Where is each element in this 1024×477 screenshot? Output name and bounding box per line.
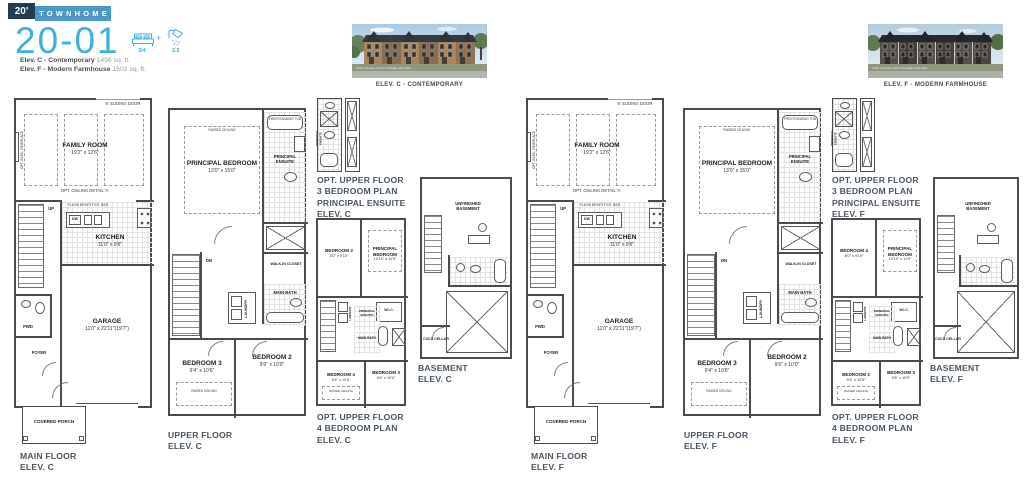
principal-ensuite-label: PRINCIPAL ENSUITE bbox=[316, 125, 323, 151]
principal-ensuite-label: PRINCIPAL ENSUITE bbox=[870, 310, 894, 317]
door-swing bbox=[208, 341, 223, 356]
freestanding-tub-label: FREESTANDING TUB bbox=[784, 118, 816, 122]
opt3-closet-strip-c bbox=[345, 98, 360, 172]
door-swing bbox=[42, 362, 56, 376]
wic-label: W.I.C. bbox=[895, 308, 913, 312]
family-room-dims: 19'2" x 12'6" bbox=[30, 150, 140, 156]
opt4-bedroom3-label: BEDROOM 3 9'6" x 10'0" bbox=[366, 370, 406, 380]
bedroom2-label: BEDROOM 2 9'6" x 10'0" bbox=[753, 354, 821, 368]
powder-label: PWD bbox=[531, 324, 549, 329]
opt4-bedroom3-dims: 9'6" x 10'0" bbox=[881, 376, 921, 381]
door-swing bbox=[723, 341, 738, 356]
bedroom2-dims: 9'6" x 10'0" bbox=[753, 362, 821, 368]
principal-ensuite-label: PRINCIPAL ENSUITE bbox=[781, 154, 819, 164]
dw-label: DW bbox=[581, 217, 593, 221]
closet bbox=[347, 101, 357, 131]
stairs-down-label: DN bbox=[718, 258, 730, 263]
tub bbox=[320, 153, 338, 167]
walk-in-closet-label: WALK-IN CLOSET bbox=[268, 262, 304, 266]
vanity-sink bbox=[325, 102, 335, 109]
elev-f-name: Elev. F - Modern Farmhouse bbox=[20, 66, 111, 73]
opt4-bedroom2-lower-dims: 9'4" x 10'6" bbox=[835, 378, 877, 383]
principal-bedroom-dims: 13'0" x 15'0" bbox=[174, 168, 270, 174]
bath-tub bbox=[781, 312, 819, 323]
porch-post bbox=[591, 436, 596, 441]
powder-sink bbox=[533, 300, 543, 308]
rough-in-tub bbox=[1001, 259, 1013, 283]
toilet bbox=[839, 131, 850, 139]
stairs-up bbox=[18, 204, 44, 288]
opt4-bedroom2-dims: 8'0" x 9'10" bbox=[319, 254, 359, 259]
covered-porch-f: COVERED PORCH bbox=[534, 406, 598, 444]
caption-main-floor-f: MAIN FLOOR ELEV. F bbox=[531, 451, 587, 474]
brochure-page: 20' TOWNHOME 20-01 3/4 + 2.5 Elev. C - C… bbox=[0, 0, 1024, 477]
laundry-label: LAUNDRY bbox=[864, 303, 868, 325]
wall bbox=[234, 340, 236, 418]
principal-ensuite-label: PRINCIPAL ENSUITE bbox=[831, 125, 838, 151]
opt3-closet-strip-f bbox=[860, 98, 875, 172]
main-bath-label: MAIN BATH bbox=[781, 290, 819, 295]
stairs-down-label: DN bbox=[203, 258, 215, 263]
sliding-door-label: 6' SLIDING DOOR bbox=[612, 101, 658, 106]
principal-bedroom-label: PRINCIPAL BEDROOM 13'0" x 15'0" bbox=[689, 160, 785, 174]
opt4-principal-label: PRINCIPAL BEDROOM 10'10" x 11'9" bbox=[879, 246, 921, 262]
ensuite-toilet bbox=[284, 172, 297, 182]
opt4-plan-c: BEDROOM 2 8'0" x 9'10" PRINCIPAL BEDROOM… bbox=[316, 218, 406, 406]
principal-ensuite-label: PRINCIPAL ENSUITE bbox=[355, 310, 379, 317]
powder-toilet bbox=[547, 302, 557, 314]
elevation-f-caption: ELEV. F - MODERN FARMHOUSE bbox=[868, 82, 1003, 88]
opt4-principal-dims: 10'10" x 11'9" bbox=[879, 257, 921, 262]
elev-c-spec: Elev. C - Contemporary 1496 sq. ft. bbox=[20, 57, 130, 64]
rough-in-sink bbox=[966, 263, 975, 272]
vanity-sink bbox=[840, 102, 850, 109]
laundry-label: LAUNDRY bbox=[349, 303, 353, 325]
caption-opt3-f: OPT. UPPER FLOOR 3 BEDROOM PLAN PRINCIPA… bbox=[832, 175, 921, 220]
opt4-bedroom4-name: BEDROOM 4 bbox=[327, 372, 355, 377]
wall bbox=[364, 362, 366, 408]
wall bbox=[318, 360, 408, 362]
raised-ceiling-label: RAISED CEILING bbox=[715, 128, 759, 132]
shower-icon bbox=[166, 28, 186, 47]
caption-upper-floor-f: UPPER FLOOR ELEV. F bbox=[684, 430, 748, 453]
opt4-bedroom2-name: BEDROOM 2 bbox=[325, 248, 353, 253]
closet bbox=[862, 137, 872, 167]
basement-plan-f: UNFINISHED BASEMENT COLD CELLAR bbox=[933, 177, 1019, 359]
rough-in-toilet bbox=[979, 265, 990, 273]
caption-basement-c: BASEMENT ELEV. C bbox=[418, 363, 468, 386]
door-swing bbox=[554, 362, 568, 376]
opt4-principal-label: PRINCIPAL BEDROOM 10'10" x 11'9" bbox=[364, 246, 406, 262]
closet bbox=[347, 137, 357, 167]
raised-ceiling-label: RAISED CEILING bbox=[184, 390, 224, 394]
bathroom-count: 2.5 bbox=[172, 48, 180, 54]
unfinished-basement-label: UNFINISHED BASEMENT bbox=[956, 201, 1000, 211]
opt4-bedroom2-lower-name: BEDROOM 2 bbox=[842, 372, 870, 377]
stairs bbox=[937, 215, 955, 273]
dryer bbox=[746, 309, 757, 320]
door-swing bbox=[214, 226, 232, 244]
opt-fireplace-label: OPT. ELEC. FIREPLACE bbox=[20, 128, 24, 172]
render-disclaimer-text: Artist Concept. Colour Package May Vary. bbox=[872, 66, 928, 70]
model-number: 20-01 bbox=[15, 20, 120, 62]
principal-bedroom-name: PRINCIPAL BEDROOM bbox=[702, 160, 772, 167]
wall bbox=[574, 264, 666, 266]
wall bbox=[875, 220, 877, 296]
washer bbox=[746, 296, 757, 307]
opt3-ensuite-plan-f: PRINCIPAL ENSUITE bbox=[832, 98, 857, 172]
wall bbox=[779, 222, 823, 224]
laundry-label: LAUNDRY bbox=[759, 295, 764, 323]
principal-bedroom-name: PRINCIPAL BEDROOM bbox=[187, 160, 257, 167]
wall bbox=[685, 338, 823, 340]
kit-bar-label: FLUSH BRKFST KIT. BAR bbox=[64, 203, 112, 207]
bedroom2-label: BEDROOM 2 9'6" x 10'0" bbox=[238, 354, 306, 368]
stairs bbox=[835, 300, 851, 352]
opt3-ensuite-plan-c: PRINCIPAL ENSUITE bbox=[317, 98, 342, 172]
foyer-label: FOYER bbox=[24, 350, 54, 355]
raised-ceiling-label: RAISED CEILING bbox=[699, 390, 739, 394]
elev-f-spec: Elev. F - Modern Farmhouse 1502 sq. ft. bbox=[20, 66, 146, 73]
wall bbox=[528, 336, 564, 338]
main-bath-label: MAIN BATH bbox=[266, 290, 304, 295]
stairs bbox=[320, 300, 336, 352]
fireplace bbox=[527, 132, 531, 162]
bedroom2-name: BEDROOM 2 bbox=[252, 354, 291, 361]
porch-post bbox=[79, 436, 84, 441]
caption-main-floor-c: MAIN FLOOR ELEV. C bbox=[20, 451, 76, 474]
dw-label: DW bbox=[69, 217, 81, 221]
garage-name: GARAGE bbox=[93, 318, 122, 325]
bedroom3-label: BEDROOM 3 9'4" x 10'6" bbox=[170, 360, 234, 374]
garage-dims: 11'0" x 22'11"(19'7") bbox=[64, 326, 150, 332]
opt-ceiling-label: OPT. CEILING DETAIL 'A' bbox=[56, 188, 114, 193]
stairs-down bbox=[687, 254, 715, 336]
basement-plan-c: UNFINISHED BASEMENT COLD CELLAR bbox=[420, 177, 512, 359]
powder-sink bbox=[21, 300, 31, 308]
tub bbox=[893, 326, 903, 346]
opt-fireplace-label: OPT. ELEC. FIREPLACE bbox=[532, 128, 536, 172]
wall bbox=[422, 325, 450, 327]
kitchen-sink bbox=[606, 215, 614, 225]
elev-c-sqft: 1496 sq. ft. bbox=[97, 57, 131, 64]
kitchen-name: KITCHEN bbox=[608, 234, 637, 241]
wall bbox=[448, 285, 510, 287]
bedroom3-label: BEDROOM 3 9'4" x 10'6" bbox=[685, 360, 749, 374]
caption-opt4-f: OPT. UPPER FLOOR 4 BEDROOM PLAN ELEV. F bbox=[832, 412, 919, 446]
garage-name: GARAGE bbox=[605, 318, 634, 325]
rough-in-sink bbox=[456, 263, 465, 272]
wall bbox=[562, 294, 564, 338]
wall bbox=[200, 252, 202, 338]
sliding-door-opening bbox=[96, 98, 140, 100]
sliding-door-opening bbox=[608, 98, 652, 100]
wall bbox=[959, 285, 1017, 287]
bath-toilet bbox=[290, 298, 302, 307]
kitchen-dims: 11'0" x 9'6" bbox=[584, 242, 660, 248]
opt4-bedroom4-upper-dims: 8'0" x 9'10" bbox=[834, 254, 874, 259]
opt4-bedroom3-name: BEDROOM 3 bbox=[887, 370, 915, 375]
washer bbox=[231, 296, 242, 307]
elevation-f-render-image: Artist Concept. Colour Package May Vary. bbox=[868, 24, 1003, 78]
principal-ensuite-label: PRINCIPAL ENSUITE bbox=[266, 154, 304, 164]
opt4-bedroom3-name: BEDROOM 3 bbox=[372, 370, 400, 375]
closet bbox=[862, 101, 872, 131]
dryer bbox=[231, 309, 242, 320]
kit-bar-label: FLUSH BRKFST KIT. BAR bbox=[576, 203, 624, 207]
unfinished-basement-label: UNFINISHED BASEMENT bbox=[446, 201, 490, 211]
bath-tub bbox=[266, 312, 304, 323]
wall bbox=[60, 200, 62, 408]
porch-post bbox=[23, 436, 28, 441]
kitchen-sink bbox=[596, 215, 604, 225]
wall bbox=[715, 252, 717, 338]
kitchen-label: KITCHEN 11'0" x 9'6" bbox=[72, 234, 148, 248]
render-disclaimer-text: Artist Concept. Colour Package May Vary. bbox=[356, 66, 412, 70]
unexcavated-area bbox=[446, 291, 508, 353]
rough-in-tub bbox=[494, 259, 506, 283]
garage-label: GARAGE 11'0" x 22'11"(19'7") bbox=[64, 318, 150, 332]
bedroom3-dims: 9'4" x 10'6" bbox=[170, 368, 234, 374]
bedroom3-name: BEDROOM 3 bbox=[697, 360, 736, 367]
laundry-tub bbox=[987, 223, 996, 232]
door-swing bbox=[52, 382, 68, 398]
main-floor-plan-c: 6' SLIDING DOOR FAMILY ROOM 19'2" x 12'6… bbox=[14, 98, 152, 408]
opt4-bedroom3-label: BEDROOM 3 9'6" x 10'0" bbox=[881, 370, 921, 380]
wall bbox=[779, 252, 823, 254]
laundry-base bbox=[977, 235, 999, 244]
ensuite-vanity bbox=[294, 136, 305, 152]
lot-width-badge: 20' bbox=[8, 3, 35, 19]
kitchen-dims: 11'0" x 9'6" bbox=[72, 242, 148, 248]
family-room-dims: 19'2" x 12'6" bbox=[542, 150, 652, 156]
opt4-bedroom2-lower-label: BEDROOM 2 9'4" x 10'6" bbox=[835, 372, 877, 382]
door-swing bbox=[729, 226, 747, 244]
wall bbox=[264, 222, 308, 224]
upper-floor-plan-f: RAISED CEILING PRINCIPAL BEDROOM 13'0" x… bbox=[683, 108, 821, 416]
stairs-down bbox=[172, 254, 200, 336]
dryer bbox=[853, 313, 863, 323]
wall bbox=[879, 362, 881, 408]
wall bbox=[50, 294, 52, 338]
wall bbox=[264, 252, 308, 254]
cold-cellar-label: COLD CELLAR bbox=[935, 337, 961, 341]
raised-ceiling-label: RAISED CEILING bbox=[841, 390, 871, 394]
stairs-up-label: UP bbox=[557, 206, 569, 211]
raised-ceiling-box bbox=[691, 382, 747, 406]
range bbox=[137, 208, 151, 228]
stairs-up bbox=[530, 204, 556, 288]
fireplace bbox=[15, 132, 19, 162]
opt4-principal-name: PRINCIPAL BEDROOM bbox=[888, 246, 912, 257]
bed-icon bbox=[131, 31, 155, 47]
laundry-tub bbox=[478, 223, 487, 232]
opt4-bedroom2-label: BEDROOM 2 8'0" x 9'10" bbox=[319, 248, 359, 258]
opt4-principal-name: PRINCIPAL BEDROOM bbox=[373, 246, 397, 257]
bedroom2-name: BEDROOM 2 bbox=[767, 354, 806, 361]
ensuite-vanity bbox=[809, 136, 820, 152]
opt4-plan-f: BEDROOM 4 8'0" x 9'10" PRINCIPAL BEDROOM… bbox=[831, 218, 921, 406]
product-type-banner: TOWNHOME bbox=[35, 6, 111, 21]
powder-toilet bbox=[35, 302, 45, 314]
bedroom2-dims: 9'6" x 10'0" bbox=[238, 362, 306, 368]
tub bbox=[835, 153, 853, 167]
wall bbox=[833, 360, 923, 362]
wall bbox=[572, 200, 574, 408]
elevation-c-render-image: Artist Concept. Colour Package May Vary. bbox=[352, 24, 487, 78]
wall bbox=[16, 294, 52, 296]
raised-ceiling-box bbox=[176, 382, 232, 406]
caption-upper-floor-c: UPPER FLOOR ELEV. C bbox=[168, 430, 232, 453]
wall bbox=[16, 200, 62, 202]
covered-porch-label: COVERED PORCH bbox=[30, 419, 78, 425]
linen-closet bbox=[266, 226, 305, 250]
caption-opt3-c: OPT. UPPER FLOOR 3 BEDROOM PLAN PRINCIPA… bbox=[317, 175, 406, 220]
bath-toilet bbox=[805, 298, 817, 307]
linen-closet bbox=[781, 226, 820, 250]
opt4-bedroom4-upper-label: BEDROOM 4 8'0" x 9'10" bbox=[834, 248, 874, 258]
caption-basement-f: BASEMENT ELEV. F bbox=[930, 363, 980, 386]
wall bbox=[749, 340, 751, 418]
stairs-up-label: UP bbox=[45, 206, 57, 211]
main-bath-label: MAIN BATH bbox=[870, 337, 894, 341]
laundry-label: LAUNDRY bbox=[244, 295, 249, 323]
caption-opt4-c: OPT. UPPER FLOOR 4 BEDROOM PLAN ELEV. C bbox=[317, 412, 404, 446]
closet bbox=[392, 328, 406, 346]
wall bbox=[360, 220, 362, 296]
garage-dims: 11'0" x 22'11"(19'7") bbox=[576, 326, 662, 332]
laundry-base bbox=[468, 235, 490, 244]
wall bbox=[935, 325, 961, 327]
kitchen-label: KITCHEN 11'0" x 9'6" bbox=[584, 234, 660, 248]
raised-ceiling-label: RAISED CEILING bbox=[200, 128, 244, 132]
opt4-bedroom4-dims: 9'4" x 10'6" bbox=[320, 378, 362, 383]
garage-label: GARAGE 11'0" x 22'11"(19'7") bbox=[576, 318, 662, 332]
wall bbox=[16, 336, 52, 338]
upper-floor-plan-c: RAISED CEILING PRINCIPAL BEDROOM 13'0" x… bbox=[168, 108, 306, 416]
wall bbox=[528, 294, 564, 296]
ensuite-toilet bbox=[799, 172, 812, 182]
elev-f-sqft: 1502 sq. ft. bbox=[112, 66, 146, 73]
toilet bbox=[324, 131, 335, 139]
unexcavated-area bbox=[957, 291, 1015, 353]
tub bbox=[378, 326, 388, 346]
opt4-bedroom4-label: BEDROOM 4 9'4" x 10'6" bbox=[320, 372, 362, 382]
elevation-c-caption: ELEV. C - CONTEMPORARY bbox=[352, 82, 487, 88]
covered-porch-c: COVERED PORCH bbox=[22, 406, 86, 444]
principal-bedroom-label: PRINCIPAL BEDROOM 13'0" x 15'0" bbox=[174, 160, 270, 174]
wall bbox=[318, 296, 408, 298]
principal-bedroom-dims: 13'0" x 15'0" bbox=[689, 168, 785, 174]
plus-sign: + bbox=[156, 33, 161, 43]
freestanding-tub-label: FREESTANDING TUB bbox=[269, 118, 301, 122]
sliding-door-label: 6' SLIDING DOOR bbox=[100, 101, 146, 106]
washer bbox=[338, 302, 348, 312]
walk-in-closet-label: WALK-IN CLOSET bbox=[783, 262, 819, 266]
bedroom3-name: BEDROOM 3 bbox=[182, 360, 221, 367]
family-room-name: FAMILY ROOM bbox=[62, 142, 107, 149]
opt4-principal-dims: 10'10" x 11'9" bbox=[364, 257, 406, 262]
opt4-bedroom4-upper-name: BEDROOM 4 bbox=[840, 248, 868, 253]
raised-ceiling-label: RAISED CEILING bbox=[326, 390, 356, 394]
cold-cellar-label: COLD CELLAR bbox=[422, 337, 450, 341]
covered-porch-label: COVERED PORCH bbox=[542, 419, 590, 425]
foyer-label: FOYER bbox=[536, 350, 566, 355]
family-room-name: FAMILY ROOM bbox=[574, 142, 619, 149]
powder-label: PWD bbox=[19, 324, 37, 329]
dryer bbox=[338, 313, 348, 323]
wic-label: W.I.C. bbox=[380, 308, 398, 312]
door-swing bbox=[564, 382, 580, 398]
bedroom3-dims: 9'4" x 10'6" bbox=[685, 368, 749, 374]
kitchen-sink bbox=[84, 215, 92, 225]
kitchen-name: KITCHEN bbox=[96, 234, 125, 241]
main-floor-plan-f: 6' SLIDING DOOR FAMILY ROOM 19'2" x 12'6… bbox=[526, 98, 664, 408]
wall bbox=[170, 338, 308, 340]
wall bbox=[62, 264, 154, 266]
range bbox=[649, 208, 663, 228]
kitchen-sink bbox=[94, 215, 102, 225]
opt4-bedroom3-dims: 9'6" x 10'0" bbox=[366, 376, 406, 381]
stairs bbox=[424, 215, 442, 273]
wall bbox=[833, 296, 923, 298]
elev-c-name: Elev. C - Contemporary bbox=[20, 57, 95, 64]
family-room-label: FAMILY ROOM 19'2" x 12'6" bbox=[542, 142, 652, 156]
main-bath-label: MAIN BATH bbox=[355, 337, 379, 341]
rough-in-toilet bbox=[470, 265, 481, 273]
bedroom-count: 3/4 bbox=[138, 48, 146, 54]
family-room-label: FAMILY ROOM 19'2" x 12'6" bbox=[30, 142, 140, 156]
washer bbox=[853, 302, 863, 312]
closet bbox=[907, 328, 921, 346]
wall bbox=[528, 200, 574, 202]
porch-post bbox=[535, 436, 540, 441]
opt-ceiling-label: OPT. CEILING DETAIL 'A' bbox=[568, 188, 626, 193]
